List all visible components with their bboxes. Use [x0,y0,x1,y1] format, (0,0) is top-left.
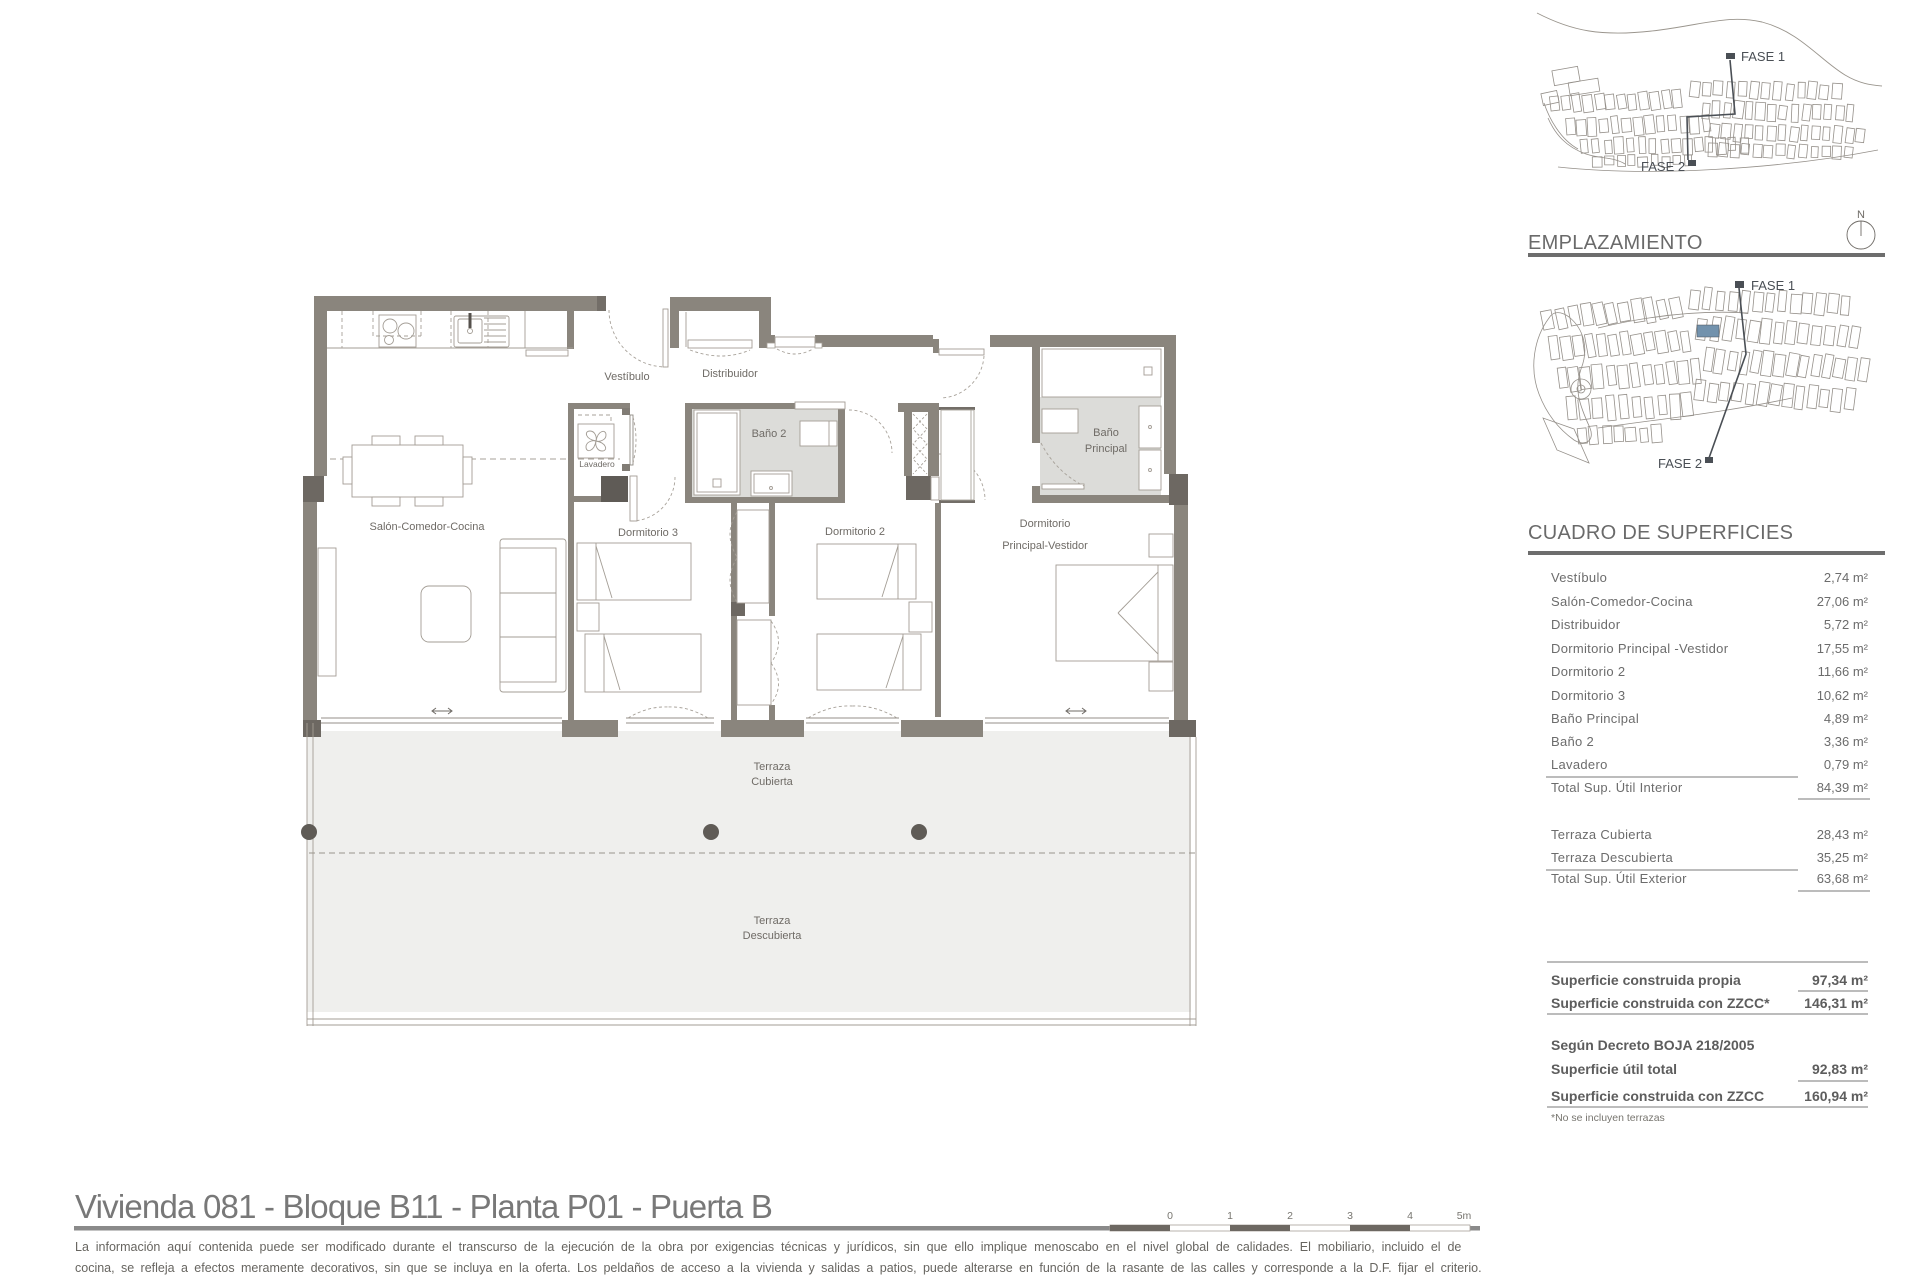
svg-text:3: 3 [1347,1210,1353,1222]
svg-text:84,39 m²: 84,39 m² [1817,780,1869,795]
svg-text:Lavadero: Lavadero [1551,757,1608,772]
svg-text:Superficie útil total: Superficie útil total [1551,1061,1677,1077]
svg-text:Terraza: Terraza [754,761,792,773]
svg-text:Superficie construida con ZZCC: Superficie construida con ZZCC [1551,1088,1764,1104]
svg-text:17,55 m²: 17,55 m² [1817,641,1869,656]
svg-text:5,72 m²: 5,72 m² [1824,617,1869,632]
svg-text:2: 2 [1287,1210,1293,1222]
svg-text:Total Sup. Útil Exterior: Total Sup. Útil Exterior [1551,871,1687,886]
svg-text:Superficie construida con ZZCC: Superficie construida con ZZCC* [1551,995,1770,1011]
svg-text:Dormitorio 2: Dormitorio 2 [1551,664,1625,679]
svg-text:Dormitorio 3: Dormitorio 3 [618,527,678,539]
svg-text:Baño 2: Baño 2 [752,428,787,440]
svg-text:Descubierta: Descubierta [743,930,803,942]
svg-text:Principal: Principal [1085,443,1127,455]
svg-text:5m: 5m [1457,1210,1472,1222]
svg-text:Dormitorio: Dormitorio [1020,518,1071,530]
svg-text:FASE 1: FASE 1 [1741,49,1785,64]
svg-text:35,25 m²: 35,25 m² [1817,850,1869,865]
svg-text:28,43 m²: 28,43 m² [1817,827,1869,842]
svg-text:Dormitorio 2: Dormitorio 2 [825,526,885,538]
svg-text:FASE 1: FASE 1 [1751,278,1795,293]
svg-text:160,94 m²: 160,94 m² [1804,1088,1868,1104]
svg-text:Principal-Vestidor: Principal-Vestidor [1002,540,1088,552]
svg-text:Distribuidor: Distribuidor [1551,617,1621,632]
svg-text:Terraza Descubierta: Terraza Descubierta [1551,850,1673,865]
svg-text:Vestíbulo: Vestíbulo [604,371,649,383]
svg-text:Total Sup. Útil Interior: Total Sup. Útil Interior [1551,780,1683,795]
svg-text:Según Decreto BOJA 218/2005: Según Decreto BOJA 218/2005 [1551,1037,1755,1053]
svg-text:0: 0 [1167,1210,1173,1222]
svg-text:146,31 m²: 146,31 m² [1804,995,1868,1011]
svg-text:27,06 m²: 27,06 m² [1817,594,1869,609]
svg-text:Dormitorio Principal -Vestidor: Dormitorio Principal -Vestidor [1551,641,1729,656]
svg-text:11,66 m²: 11,66 m² [1818,664,1869,679]
svg-text:Distribuidor: Distribuidor [702,368,758,380]
svg-text:97,34 m²: 97,34 m² [1812,972,1868,988]
svg-text:cocina, se refleja a efectos m: cocina, se refleja a efectos meramente d… [75,1261,1482,1275]
svg-text:Vivienda 081 - Bloque B11 - Pl: Vivienda 081 - Bloque B11 - Planta P01 -… [75,1188,772,1225]
svg-text:Terraza: Terraza [754,915,792,927]
svg-text:1: 1 [1227,1210,1233,1222]
svg-text:Lavadero: Lavadero [579,459,615,469]
svg-text:Baño Principal: Baño Principal [1551,711,1639,726]
svg-text:92,83 m²: 92,83 m² [1812,1061,1868,1077]
svg-text:Salón-Comedor-Cocina: Salón-Comedor-Cocina [370,521,486,533]
svg-text:Salón-Comedor-Cocina: Salón-Comedor-Cocina [1551,594,1693,609]
svg-text:Dormitorio 3: Dormitorio 3 [1551,688,1625,703]
svg-text:*No se incluyen terrazas: *No se incluyen terrazas [1551,1112,1665,1124]
svg-text:Terraza Cubierta: Terraza Cubierta [1551,827,1652,842]
svg-text:63,68 m²: 63,68 m² [1817,871,1869,886]
svg-text:Vestíbulo: Vestíbulo [1551,570,1607,585]
svg-text:2,74 m²: 2,74 m² [1824,570,1869,585]
svg-text:Cubierta: Cubierta [751,776,793,788]
svg-text:EMPLAZAMIENTO: EMPLAZAMIENTO [1528,232,1703,254]
svg-text:0,79 m²: 0,79 m² [1824,757,1869,772]
svg-text:3,36 m²: 3,36 m² [1824,734,1869,749]
svg-text:CUADRO DE SUPERFICIES: CUADRO DE SUPERFICIES [1528,522,1793,544]
svg-text:FASE 2: FASE 2 [1658,456,1702,471]
svg-text:4: 4 [1407,1210,1413,1222]
svg-text:Superficie construida propia: Superficie construida propia [1551,972,1741,988]
svg-text:N: N [1857,209,1865,221]
svg-text:La información aquí contenida: La información aquí contenida puede ser … [75,1240,1461,1254]
svg-text:4,89 m²: 4,89 m² [1824,711,1869,726]
svg-text:Baño 2: Baño 2 [1551,734,1594,749]
svg-text:Baño: Baño [1093,427,1119,439]
svg-text:10,62 m²: 10,62 m² [1817,688,1869,703]
svg-text:FASE 2: FASE 2 [1641,159,1685,174]
